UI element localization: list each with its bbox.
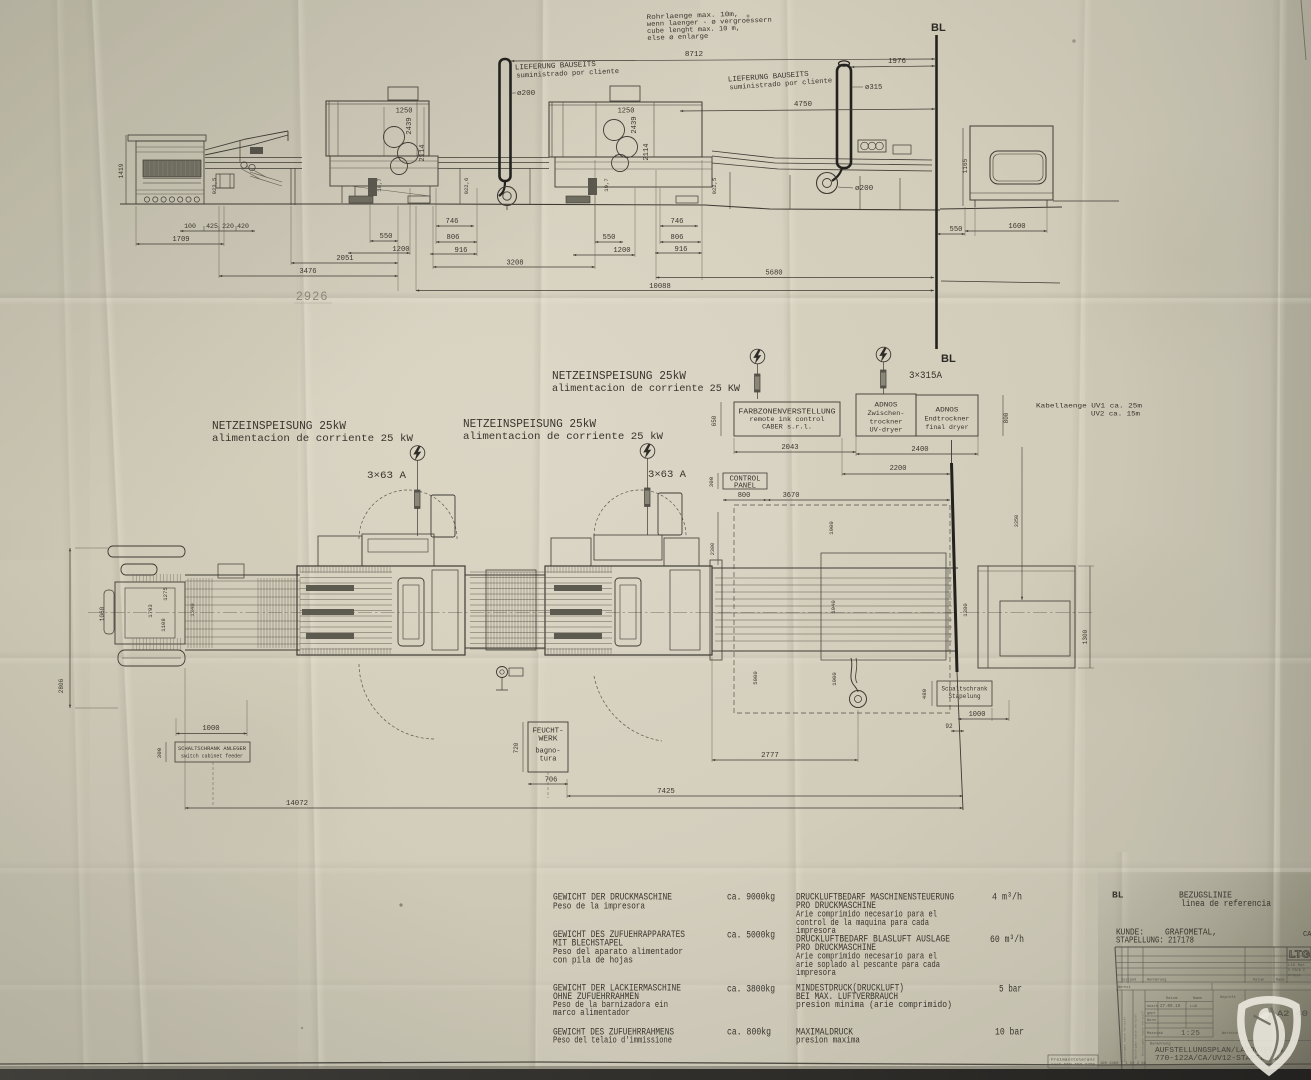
svg-text:800: 800 (1003, 412, 1010, 423)
svg-text:1:25: 1:25 (1181, 1030, 1200, 1038)
svg-text:10 bar: 10 bar (995, 1027, 1024, 1039)
svg-text:720: 720 (513, 742, 520, 753)
svg-text:8712: 8712 (685, 51, 704, 59)
svg-text:alimentacion de corriente 25 k: alimentacion de corriente 25 kW (212, 433, 414, 445)
svg-text:ca. 5000kg: ca. 5000kg (727, 930, 775, 942)
svg-text:550: 550 (603, 234, 616, 242)
svg-text:800: 800 (738, 492, 751, 500)
svg-text:425: 425 (206, 223, 218, 230)
svg-text:922,5: 922,5 (711, 178, 718, 195)
svg-text:1165: 1165 (962, 158, 969, 173)
svg-text:10088: 10088 (649, 283, 671, 291)
svg-text:3×315A: 3×315A (909, 370, 942, 381)
svg-text:746: 746 (446, 218, 459, 226)
svg-text:706: 706 (545, 777, 558, 785)
svg-text:BL: BL (931, 22, 946, 34)
svg-text:marco alimentador: marco alimentador (553, 1007, 630, 1018)
svg-text:1000: 1000 (969, 711, 986, 719)
svg-text:Aenderung: Aenderung (1147, 978, 1166, 983)
svg-text:420: 420 (237, 223, 249, 230)
svg-text:Kabellaenge UV1 ca. 25m: Kabellaenge UV1 ca. 25m (1036, 403, 1142, 411)
svg-text:1600: 1600 (1008, 223, 1025, 231)
svg-text:SCHALTSCHRANK ANLEGER: SCHALTSCHRANK ANLEGER (178, 745, 247, 752)
svg-text:LTG: LTG (1289, 949, 1310, 961)
svg-text:FEUCHT-: FEUCHT- (533, 728, 564, 736)
svg-text:Endtrockner: Endtrockner (925, 416, 970, 423)
svg-text:A2 40: A2 40 (1277, 1009, 1308, 1019)
svg-text:2400: 2400 (911, 446, 928, 454)
svg-text:Datum: Datum (1253, 979, 1264, 983)
svg-text:1709: 1709 (172, 236, 189, 244)
svg-text:1200: 1200 (392, 246, 409, 254)
svg-text:60 m³/h: 60 m³/h (990, 934, 1024, 946)
svg-text:bearb: bearb (1147, 1004, 1158, 1009)
svg-text:1976: 1976 (888, 58, 907, 66)
svg-text:Norm: Norm (1147, 1018, 1156, 1023)
svg-text:Werkst: Werkst (1118, 985, 1131, 990)
svg-text:switch cabinet feeder: switch cabinet feeder (181, 754, 243, 760)
svg-text:2439: 2439 (406, 117, 414, 134)
svg-text:5 bar: 5 bar (999, 984, 1022, 996)
svg-text:1900: 1900 (828, 521, 835, 535)
svg-text:1060: 1060 (99, 606, 106, 621)
svg-text:806: 806 (671, 234, 684, 242)
svg-text:19,7: 19,7 (376, 178, 383, 191)
svg-text:Peso de la impresora: Peso de la impresora (553, 901, 645, 912)
svg-text:ADNOS: ADNOS (875, 402, 898, 409)
svg-text:gepr: gepr (1147, 1011, 1156, 1016)
svg-text:3476: 3476 (299, 268, 316, 276)
svg-text:2806: 2806 (58, 678, 65, 693)
svg-text:806: 806 (447, 234, 460, 242)
svg-text:Schaltschrank: Schaltschrank (942, 686, 988, 693)
svg-text:ca. 9000kg: ca. 9000kg (727, 892, 775, 904)
svg-text:CA: CA (1303, 931, 1311, 939)
svg-text:2777: 2777 (761, 752, 779, 760)
svg-text:UV-dryer: UV-dryer (870, 427, 903, 434)
svg-text:remote ink control: remote ink control (750, 416, 825, 423)
svg-text:300: 300 (156, 747, 163, 758)
svg-text:Weitergabe sowie Vervielf: Weitergabe sowie Vervielf (1134, 1014, 1138, 1059)
svg-text:3×63 A: 3×63 A (648, 469, 686, 480)
svg-text:3350: 3350 (1014, 515, 1020, 527)
svg-text:2043: 2043 (781, 444, 798, 452)
svg-text:1380: 1380 (962, 603, 969, 617)
svg-text:100: 100 (184, 223, 196, 230)
svg-text:Freimasstoleranz: Freimasstoleranz (1051, 1058, 1095, 1063)
svg-text:2051: 2051 (336, 255, 353, 263)
svg-text:92: 92 (945, 723, 953, 730)
svg-text:550: 550 (950, 226, 963, 234)
svg-text:1419: 1419 (118, 163, 125, 178)
svg-text:Peso del telaio d'immissione: Peso del telaio d'immissione (553, 1035, 672, 1046)
svg-text:presion minima (arie comprimid: presion minima (arie comprimido) (796, 999, 952, 1010)
svg-text:2114: 2114 (419, 144, 427, 161)
svg-text:7425: 7425 (657, 788, 675, 796)
svg-text:2300: 2300 (710, 543, 716, 555)
svg-text:1108: 1108 (160, 618, 167, 631)
svg-text:5000: 5000 (752, 671, 759, 685)
svg-text:Zwischen-: Zwischen- (868, 410, 905, 417)
svg-text:ø200: ø200 (517, 90, 536, 98)
svg-text:2200: 2200 (890, 465, 907, 473)
svg-text:ca. 800kg: ca. 800kg (727, 1027, 771, 1039)
svg-text:2114: 2114 (643, 143, 651, 160)
svg-text:L16 Mat: L16 Mat (1288, 964, 1305, 968)
svg-text:916: 916 (675, 246, 688, 254)
svg-text:1250: 1250 (396, 108, 413, 116)
svg-text:ADNOS: ADNOS (936, 407, 959, 414)
svg-text:4 m³/h: 4 m³/h (992, 892, 1022, 904)
svg-text:NETZEINSPEISUNG 25kW: NETZEINSPEISUNG 25kW (463, 418, 596, 431)
svg-text:final dryer: final dryer (926, 424, 969, 431)
svg-text:trockner: trockner (870, 419, 903, 426)
svg-text:WERK: WERK (539, 736, 559, 744)
svg-text:550: 550 (380, 233, 393, 241)
svg-text:linea de referencia: linea de referencia (1181, 899, 1272, 909)
svg-text:1793: 1793 (147, 604, 154, 617)
svg-text:ø200: ø200 (855, 185, 874, 193)
svg-text:STAPELLUNG: 217178: STAPELLUNG: 217178 (1116, 935, 1194, 946)
svg-text:bagno-: bagno- (536, 748, 561, 756)
svg-text:wrappi: wrappi (1288, 973, 1301, 978)
svg-text:4750: 4750 (794, 101, 813, 109)
svg-text:1000: 1000 (202, 725, 219, 733)
svg-text:Zustand: Zustand (1121, 978, 1136, 983)
svg-text:tura: tura (540, 756, 557, 764)
svg-text:1275: 1275 (162, 587, 169, 600)
svg-text:650: 650 (711, 415, 718, 426)
svg-text:3208: 3208 (506, 260, 523, 268)
svg-text:Masstab: Masstab (1147, 1031, 1164, 1036)
svg-text:922,6: 922,6 (463, 178, 470, 195)
svg-text:Geprüft: Geprüft (1220, 995, 1236, 1000)
svg-text:1900: 1900 (831, 672, 838, 686)
svg-text:1250: 1250 (618, 108, 635, 116)
svg-text:Stapelung: Stapelung (949, 693, 981, 700)
svg-text:1200: 1200 (613, 247, 630, 255)
svg-text:Weitergabe sowie Vervielf: Weitergabe sowie Vervielf (1123, 1017, 1127, 1062)
svg-text:5 PACK E: 5 PACK E (1288, 969, 1305, 973)
svg-text:Weitergabe sowie Vervielf: Weitergabe sowie Vervielf (1141, 1011, 1145, 1056)
svg-text:1940: 1940 (830, 600, 837, 614)
svg-text:5680: 5680 (765, 270, 782, 278)
svg-text:Name: Name (1276, 979, 1285, 983)
svg-text:PANEL: PANEL (734, 483, 756, 491)
svg-text:2926: 2926 (296, 289, 329, 303)
svg-text:Name: Name (1193, 997, 1203, 1001)
svg-text:2439: 2439 (631, 116, 639, 133)
svg-text:Benennung: Benennung (1150, 1043, 1171, 1047)
svg-text:300: 300 (708, 476, 715, 487)
svg-text:ø315: ø315 (865, 84, 882, 92)
svg-text:con pila de hojas: con pila de hojas (553, 955, 633, 966)
svg-text:746: 746 (671, 218, 684, 226)
svg-text:916: 916 (455, 247, 468, 255)
svg-text:Datum: Datum (1166, 997, 1178, 1001)
svg-text:impresora: impresora (796, 967, 836, 978)
svg-text:CABER s.r.l.: CABER s.r.l. (762, 424, 812, 431)
svg-text:alimentacion de corriente 25 k: alimentacion de corriente 25 kW (463, 431, 664, 443)
svg-text:UV2 ca. 15m: UV2 ca. 15m (1091, 411, 1140, 419)
svg-text:alimentacion de corriente 25 K: alimentacion de corriente 25 KW (552, 383, 741, 395)
svg-text:presion maxima: presion maxima (796, 1035, 860, 1046)
svg-text:1300: 1300 (1082, 629, 1089, 644)
svg-text:27.09.19: 27.09.19 (1160, 1005, 1181, 1009)
svg-text:BL: BL (941, 353, 956, 365)
svg-text:14072: 14072 (286, 800, 308, 808)
svg-text:3×63 A: 3×63 A (367, 470, 406, 481)
svg-text:480: 480 (921, 688, 928, 699)
svg-text:BL: BL (1112, 890, 1124, 901)
svg-text:Lüß: Lüß (1190, 1004, 1198, 1009)
svg-text:3670: 3670 (783, 492, 800, 500)
svg-text:ca. 3800kg: ca. 3800kg (727, 984, 775, 996)
svg-text:NETZEINSPEISUNG 25kW: NETZEINSPEISUNG 25kW (552, 370, 686, 383)
svg-text:19,7: 19,7 (603, 178, 610, 191)
svg-text:923,5: 923,5 (211, 178, 218, 195)
svg-text:NETZEINSPEISUNG 25kW: NETZEINSPEISUNG 25kW (212, 420, 346, 433)
